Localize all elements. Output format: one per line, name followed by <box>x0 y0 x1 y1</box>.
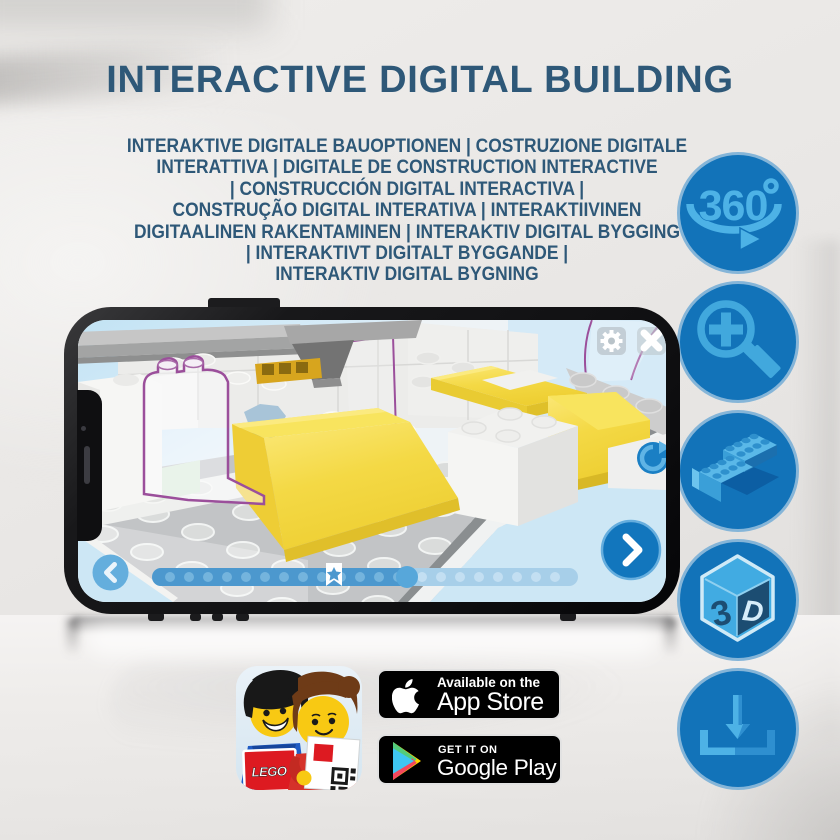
svg-text:360: 360 <box>699 182 768 230</box>
svg-text:D: D <box>741 595 765 629</box>
svg-text:LEGO: LEGO <box>251 763 287 779</box>
